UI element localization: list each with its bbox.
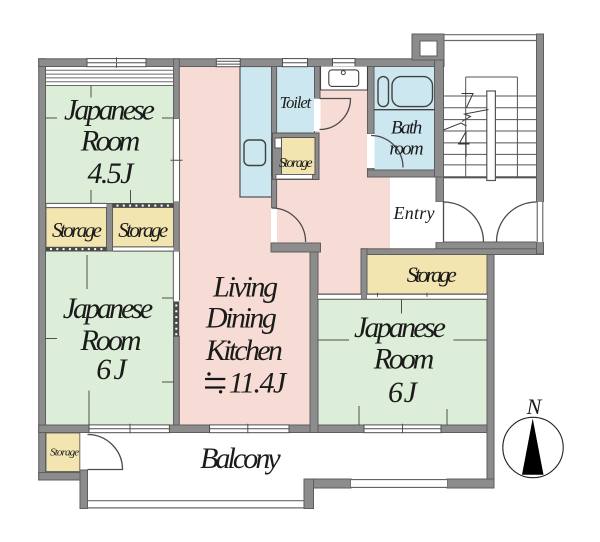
svg-text:room: room xyxy=(389,138,423,159)
svg-text:Storage: Storage xyxy=(50,447,79,459)
svg-text:11.4J: 11.4J xyxy=(229,366,288,399)
svg-text:Storage: Storage xyxy=(52,218,102,242)
svg-text:Living: Living xyxy=(212,270,278,303)
svg-text:4.5J: 4.5J xyxy=(88,157,136,190)
svg-text:Japanese: Japanese xyxy=(64,94,155,127)
svg-text:Storage: Storage xyxy=(118,218,168,242)
svg-text:Storage: Storage xyxy=(279,156,313,171)
svg-text:Storage: Storage xyxy=(407,262,457,287)
svg-text:N: N xyxy=(526,394,543,419)
svg-text:Room: Room xyxy=(373,343,435,376)
svg-text:Balcony: Balcony xyxy=(200,442,281,475)
svg-text:Entry: Entry xyxy=(393,203,435,223)
svg-text:Dining: Dining xyxy=(205,302,277,335)
svg-text:Japanese: Japanese xyxy=(63,292,154,325)
svg-text:Bath: Bath xyxy=(391,118,422,139)
svg-text:Toilet: Toilet xyxy=(280,93,312,112)
svg-text:Kitchen: Kitchen xyxy=(205,334,283,367)
svg-text:Room: Room xyxy=(80,125,141,158)
svg-text:Japanese: Japanese xyxy=(354,311,446,344)
svg-text:6J: 6J xyxy=(388,376,419,409)
